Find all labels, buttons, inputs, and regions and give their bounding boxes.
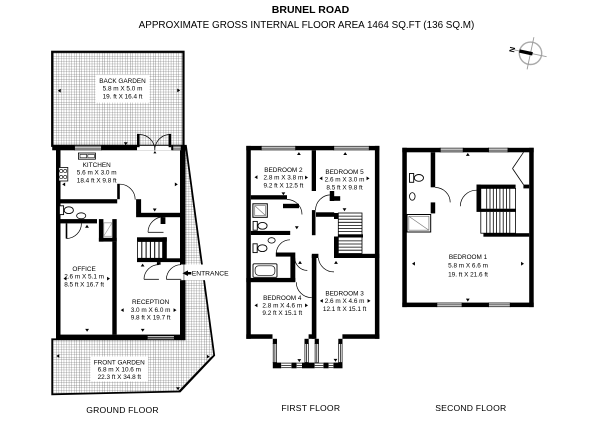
svg-text:BACK GARDEN: BACK GARDEN (99, 78, 146, 85)
svg-text:19. ft X 21.6 ft: 19. ft X 21.6 ft (448, 271, 488, 278)
svg-text:RECEPTION: RECEPTION (132, 299, 170, 306)
svg-text:5.8 m X 5.0 m: 5.8 m X 5.0 m (103, 86, 143, 93)
svg-text:18.4 ft X 9.8 ft: 18.4 ft X 9.8 ft (77, 177, 117, 184)
svg-text:GROUND FLOOR: GROUND FLOOR (86, 405, 159, 415)
svg-text:SECOND FLOOR: SECOND FLOOR (435, 403, 506, 413)
svg-text:22.3 ft X 34.8 ft: 22.3 ft X 34.8 ft (98, 374, 142, 381)
svg-text:9.8 ft X 19.7 ft: 9.8 ft X 19.7 ft (131, 314, 171, 321)
svg-text:6.8 m X 10.6 m: 6.8 m X 10.6 m (98, 367, 141, 374)
svg-text:BEDROOM 5: BEDROOM 5 (325, 169, 364, 176)
svg-text:BEDROOM 3: BEDROOM 3 (325, 290, 364, 297)
svg-text:ENTRANCE: ENTRANCE (192, 271, 229, 278)
svg-text:2.6 m X 5.1 m: 2.6 m X 5.1 m (64, 274, 104, 281)
svg-text:2.8 m X 4.6 m: 2.8 m X 4.6 m (262, 303, 302, 310)
svg-text:BEDROOM 4: BEDROOM 4 (263, 295, 302, 302)
svg-text:19. ft X 16.4 ft: 19. ft X 16.4 ft (103, 93, 143, 100)
svg-text:FIRST FLOOR: FIRST FLOOR (281, 403, 340, 413)
svg-text:2.6 m X 3.0 m: 2.6 m X 3.0 m (325, 177, 365, 184)
svg-text:KITCHEN: KITCHEN (83, 162, 111, 169)
svg-text:12.1 ft X 15.1 ft: 12.1 ft X 15.1 ft (323, 306, 367, 313)
svg-text:BEDROOM 2: BEDROOM 2 (264, 167, 303, 174)
svg-text:5.6 m X 3.0 m: 5.6 m X 3.0 m (77, 170, 117, 177)
svg-text:2.8 m X 3.8 m: 2.8 m X 3.8 m (264, 175, 304, 182)
svg-text:OFFICE: OFFICE (72, 266, 95, 273)
svg-text:3.0 m X 6.0 m: 3.0 m X 6.0 m (131, 307, 171, 314)
svg-text:8.5 ft X 16.7 ft: 8.5 ft X 16.7 ft (64, 281, 104, 288)
svg-text:BRUNEL ROAD: BRUNEL ROAD (272, 4, 350, 16)
svg-text:8.5 ft X 9.8 ft: 8.5 ft X 9.8 ft (326, 184, 362, 191)
svg-text:9.2 ft X 15.1 ft: 9.2 ft X 15.1 ft (262, 310, 302, 317)
svg-text:5.8 m X 6.6 m: 5.8 m X 6.6 m (448, 263, 488, 270)
svg-text:BEDROOM 1: BEDROOM 1 (449, 254, 488, 261)
svg-text:FRONT GARDEN: FRONT GARDEN (94, 359, 145, 366)
svg-text:9.2 ft X 12.5 ft: 9.2 ft X 12.5 ft (264, 182, 304, 189)
svg-text:2.6 m X 4.6 m: 2.6 m X 4.6 m (325, 298, 365, 305)
svg-text:APPROXIMATE GROSS INTERNAL FLO: APPROXIMATE GROSS INTERNAL FLOOR AREA 14… (139, 20, 475, 31)
